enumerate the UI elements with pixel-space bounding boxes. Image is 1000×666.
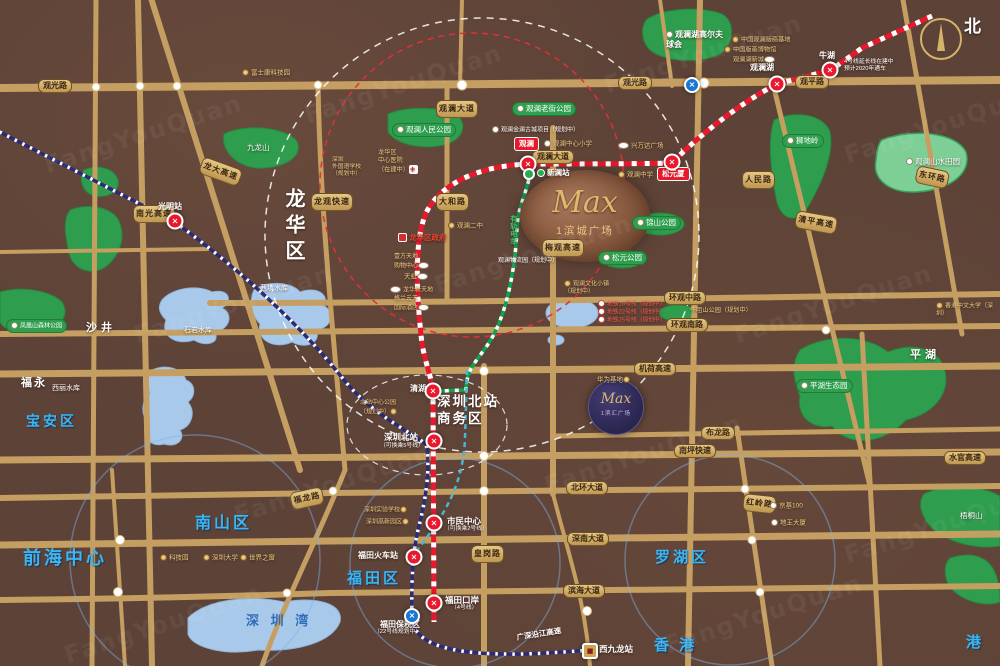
station-guangming-glyph: ×	[169, 215, 182, 228]
road-network	[0, 0, 1000, 666]
location-map: Max 1滨城广场 Max 1滨汇广场 北 观光路观光路观平路观澜大道环观中路环…	[0, 0, 1000, 666]
station-futian-port-icon: ×	[426, 595, 443, 612]
tram-line	[440, 170, 531, 391]
map-base-svg	[0, 0, 1000, 666]
station-metro-logo-glyph: ×	[686, 79, 698, 91]
compass-needle-icon	[937, 23, 945, 51]
project-logo-main: Max 1滨城广场	[520, 170, 650, 262]
project-secondary-brand: Max	[589, 392, 643, 406]
station-futian-port-glyph: ×	[428, 597, 441, 610]
station-songyuanxia-glyph: ×	[666, 156, 679, 169]
station-guanlanhu-icon: ×	[769, 76, 786, 93]
project-main-brand: Max	[520, 188, 650, 218]
station-niuhu-icon: ×	[822, 62, 839, 79]
station-niuhu-glyph: ×	[824, 64, 837, 77]
station-shenzhenbei-glyph: ×	[428, 435, 441, 448]
station-futian-rail-icon: ×	[406, 549, 423, 566]
station-west-kowloon-glyph: ■	[584, 645, 596, 657]
compass-north-label: 北	[964, 12, 981, 37]
station-metro-logo-icon: ×	[684, 77, 700, 93]
station-xinlan-icon	[523, 168, 535, 180]
project-main-name: 1滨城广场	[520, 223, 650, 238]
compass: 北	[916, 12, 986, 62]
station-civic-center-icon: ×	[426, 515, 443, 532]
district-circles	[70, 435, 835, 666]
station-civic-center-glyph: ×	[428, 517, 441, 530]
station-qinghu-icon: ×	[425, 383, 442, 400]
station-futian-bonded-glyph: ×	[406, 610, 418, 622]
station-west-kowloon-icon: ■	[582, 643, 598, 659]
station-futian-rail-glyph: ×	[408, 551, 421, 564]
station-shenzhenbei-icon: ×	[426, 433, 443, 450]
park-shanshui-shape	[875, 133, 967, 192]
station-qinghu-glyph: ×	[427, 385, 440, 398]
station-guanlanhu-glyph: ×	[771, 78, 784, 91]
station-futian-bonded-icon: ×	[404, 608, 420, 624]
project-logo-secondary: Max 1滨汇广场	[588, 379, 644, 435]
project-secondary-name: 1滨汇广场	[589, 409, 643, 417]
station-songyuanxia-icon: ×	[664, 154, 681, 171]
station-guangming-icon: ×	[167, 213, 184, 230]
